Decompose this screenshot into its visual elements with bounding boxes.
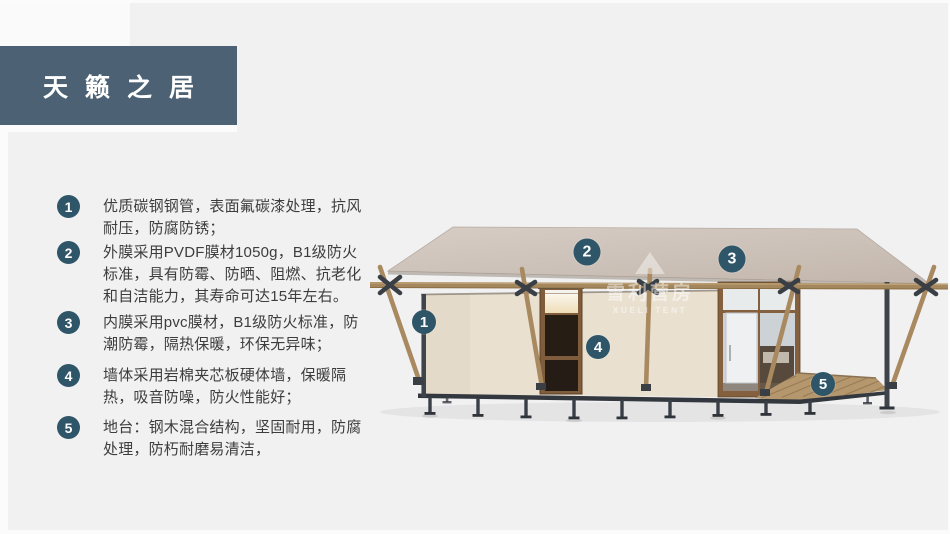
tent-illustration — [0, 0, 950, 534]
callout-marker-5: 5 — [811, 372, 835, 396]
callout-marker-2: 2 — [574, 239, 601, 266]
wall-shading — [421, 294, 470, 395]
callout-marker-4: 4 — [586, 335, 610, 359]
callout-marker-1: 1 — [412, 310, 436, 334]
slide: 天籁之居 1 优质碳钢钢管，表面氟碳漆处理，抗风耐压，防腐防锈； 2 外膜采用P… — [0, 0, 950, 534]
ground-shadow — [380, 402, 940, 422]
tent-door — [538, 285, 584, 394]
callout-marker-3: 3 — [719, 246, 746, 273]
